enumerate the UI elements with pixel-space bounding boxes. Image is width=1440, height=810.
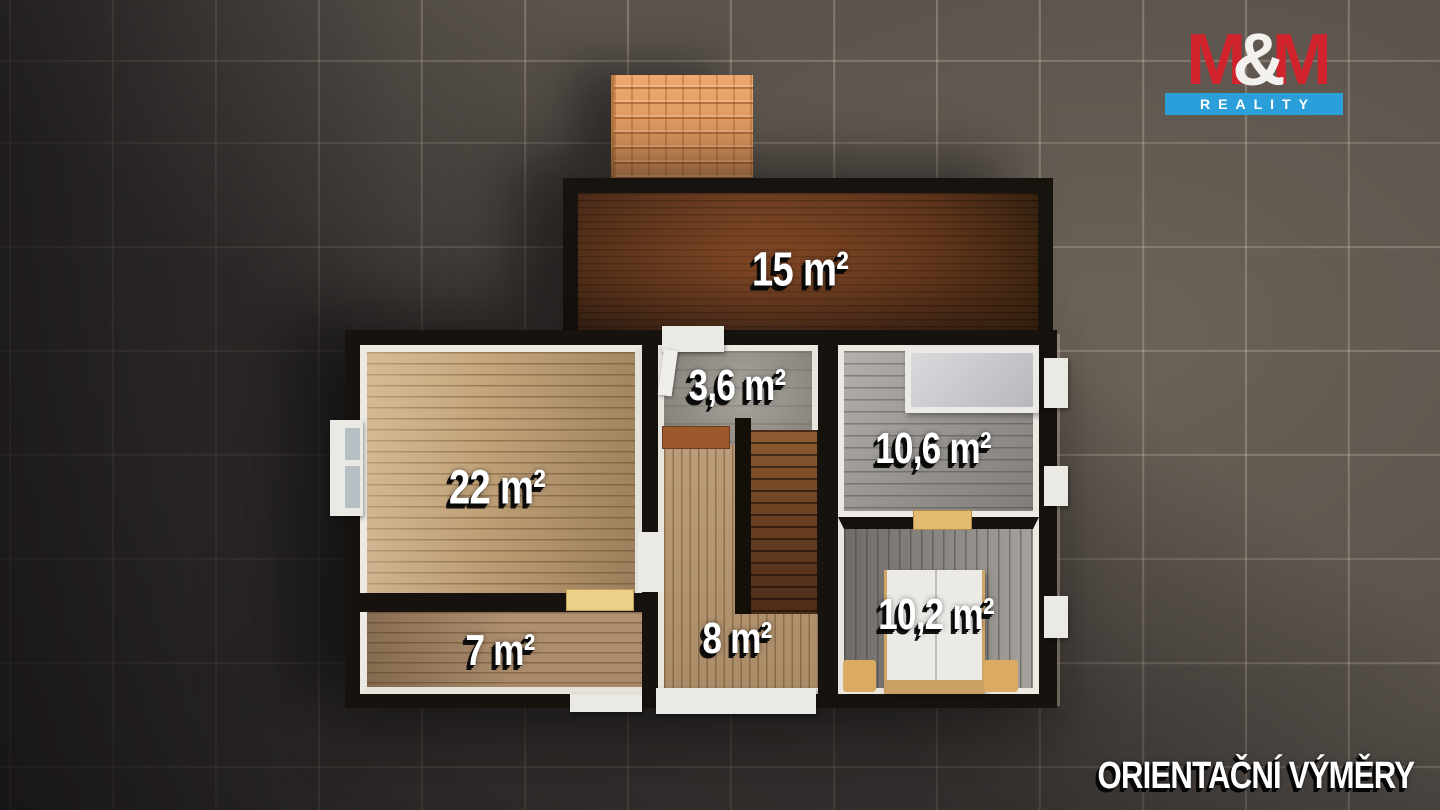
logo-letter-m2: M bbox=[1272, 30, 1322, 90]
stair-railing-wall bbox=[735, 418, 751, 614]
window-pane bbox=[345, 428, 360, 460]
roof-section bbox=[611, 75, 753, 181]
room-area-label-bedroom-top: 10,6 m² bbox=[875, 424, 991, 474]
floor-plan-render: 15 m² 22 m² 3,6 m² 10,6 m² 7 m² 8 m² 10,… bbox=[0, 0, 1440, 810]
terrace-door bbox=[662, 326, 724, 352]
disclaimer-text: ORIENTAČNÍ VÝMĚRY bbox=[1097, 755, 1414, 798]
room-area-label-bathroom: 3,6 m² bbox=[689, 361, 786, 411]
window-right-top bbox=[1044, 358, 1068, 408]
bedroom-door bbox=[913, 510, 972, 530]
window-bottom bbox=[570, 694, 642, 712]
logo-letter-m1: M bbox=[1186, 30, 1236, 90]
room-area-label-terrace: 15 m² bbox=[752, 243, 848, 298]
mm-reality-logo: M & M REALITY bbox=[1165, 30, 1343, 115]
window-pane bbox=[345, 466, 360, 508]
nightstand-left bbox=[843, 660, 876, 692]
patio-door-threshold bbox=[656, 688, 816, 714]
room-area-label-bedroom-bottom: 10,2 m² bbox=[878, 590, 994, 640]
window-right-bottom bbox=[1044, 596, 1068, 638]
room-area-label-living: 22 m² bbox=[449, 461, 545, 516]
room-area-label-hallway: 8 m² bbox=[702, 614, 771, 664]
door-panel-open bbox=[566, 589, 634, 611]
door-opening bbox=[638, 532, 664, 592]
room-area-label-bottom-left: 7 m² bbox=[465, 626, 534, 676]
headboard bbox=[884, 680, 985, 694]
logo-mm-wordmark: M & M bbox=[1165, 30, 1343, 90]
nightstand-right bbox=[984, 660, 1018, 692]
hall-cabinet bbox=[662, 426, 730, 449]
mattress bbox=[911, 353, 1033, 407]
window-left-bay bbox=[330, 420, 363, 516]
single-bed bbox=[905, 347, 1039, 413]
logo-ampersand: & bbox=[1232, 30, 1275, 90]
window-right-middle bbox=[1044, 466, 1068, 506]
staircase bbox=[751, 430, 819, 614]
